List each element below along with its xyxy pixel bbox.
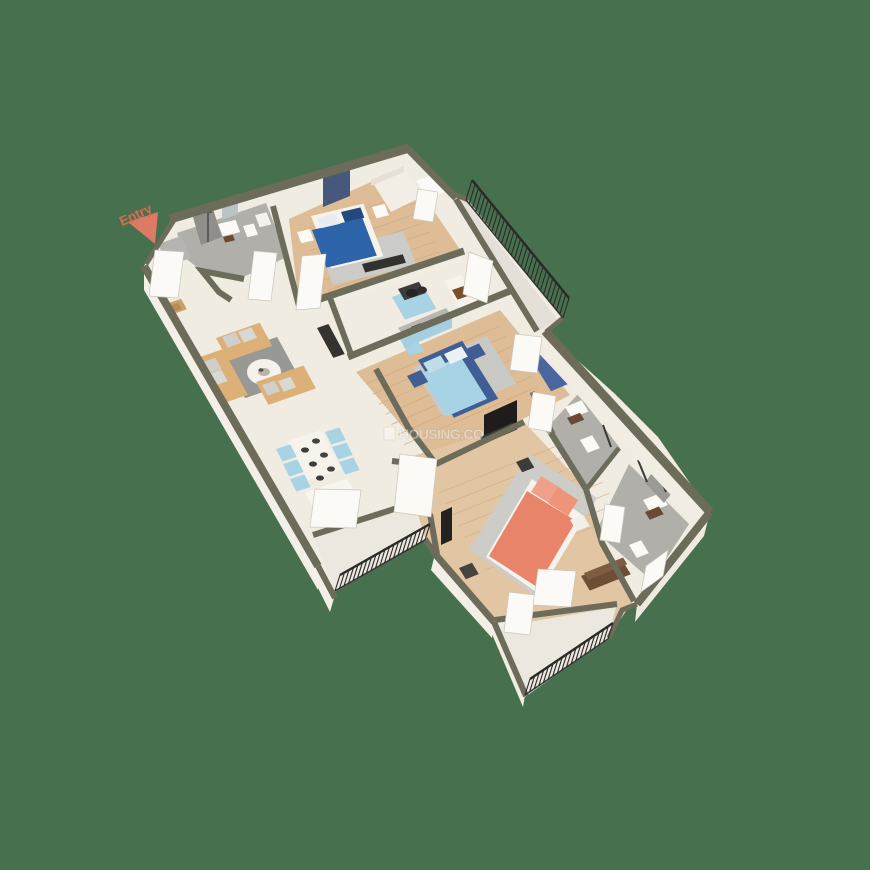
svg-text:HOUSING.CO: HOUSING.CO (399, 426, 484, 442)
